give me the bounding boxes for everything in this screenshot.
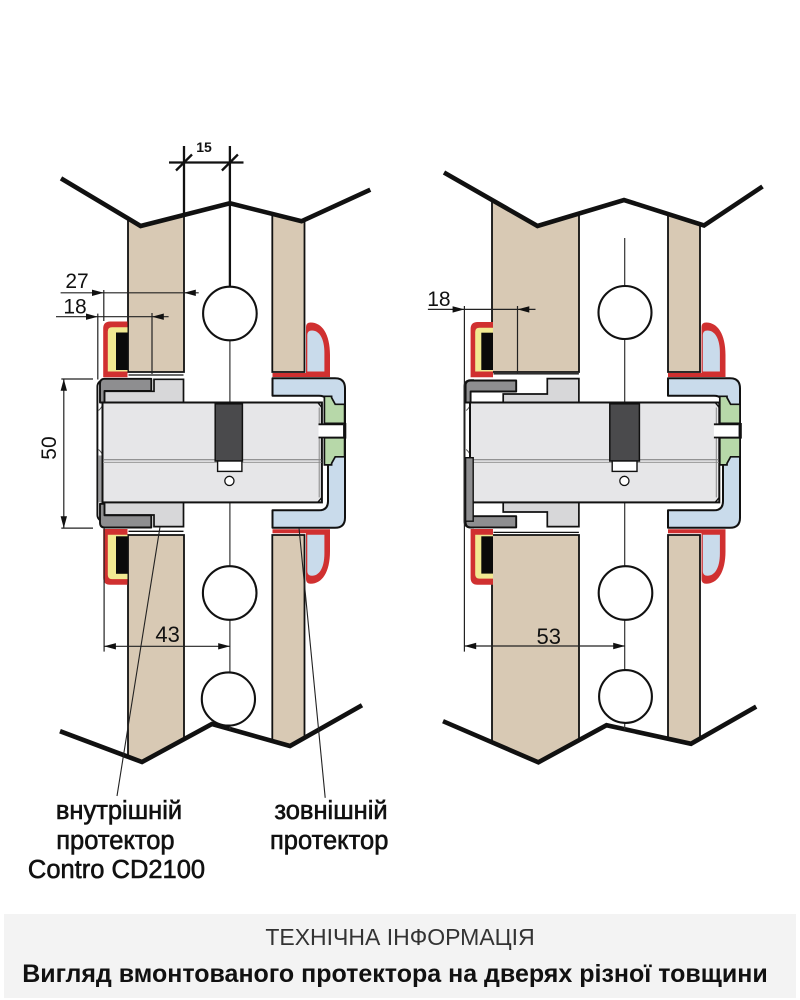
svg-text:внутрішній: внутрішній	[56, 797, 182, 825]
svg-text:18: 18	[427, 288, 450, 311]
svg-text:ТЕХНІЧНА ІНФОРМАЦІЯ: ТЕХНІЧНА ІНФОРМАЦІЯ	[265, 924, 534, 950]
svg-text:зовнішній: зовнішній	[274, 797, 387, 825]
svg-text:протектор: протектор	[56, 827, 174, 855]
svg-text:50: 50	[38, 436, 61, 459]
svg-text:протектор: протектор	[270, 827, 388, 855]
svg-text:27: 27	[65, 270, 88, 293]
svg-text:15: 15	[196, 139, 212, 155]
svg-text:43: 43	[155, 622, 179, 647]
svg-text:53: 53	[536, 624, 560, 649]
svg-text:18: 18	[63, 296, 86, 319]
svg-text:Contro CD2100: Contro CD2100	[28, 856, 205, 884]
svg-text:Вигляд вмонтованого протектора: Вигляд вмонтованого протектора на дверях…	[22, 960, 767, 988]
